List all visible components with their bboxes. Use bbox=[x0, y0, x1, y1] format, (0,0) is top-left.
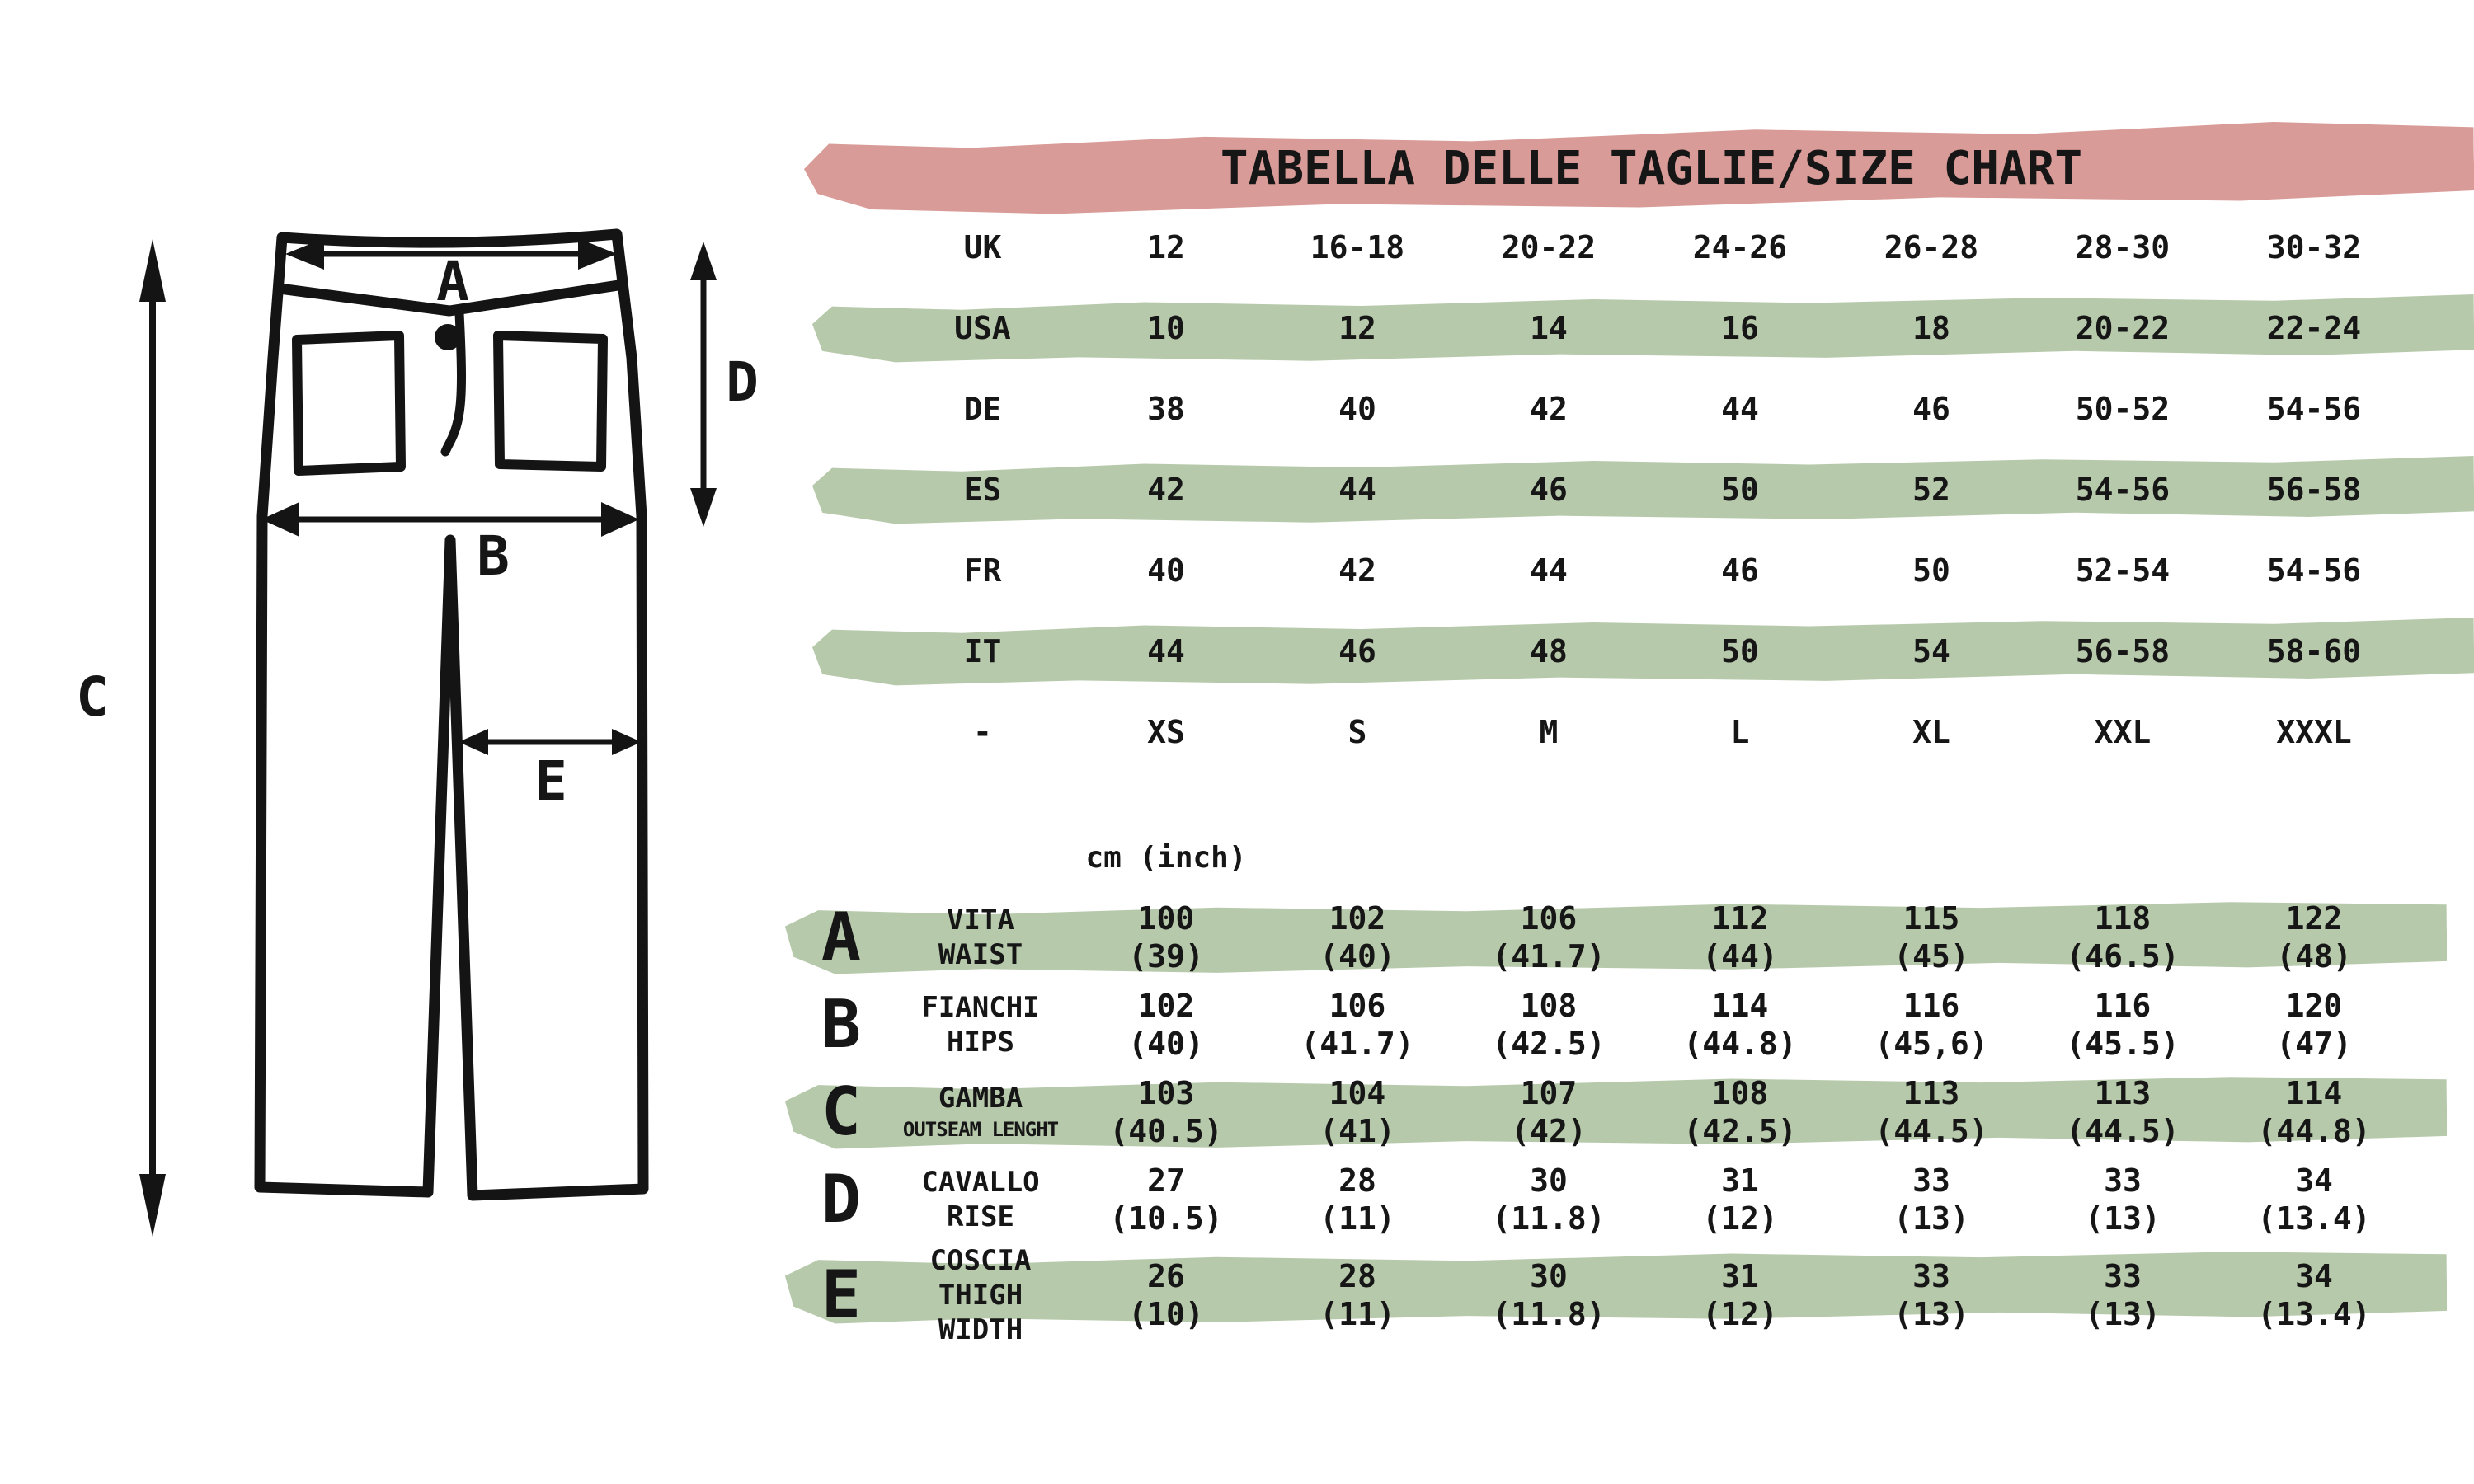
value-cm: 34 bbox=[2218, 1162, 2410, 1200]
value-inch: (44.8) bbox=[2218, 1112, 2410, 1150]
size-value: 26-28 bbox=[1836, 229, 2027, 265]
value-inch: (40.5) bbox=[1070, 1112, 1262, 1150]
value-inch: (40) bbox=[1262, 937, 1453, 975]
size-value: 52-54 bbox=[2027, 552, 2218, 589]
size-value: 40 bbox=[1070, 552, 1262, 589]
value-cm: 34 bbox=[2218, 1257, 2410, 1295]
measure-name-en: WAIST bbox=[891, 937, 1070, 972]
measure-value: 115 (45) bbox=[1836, 899, 2027, 975]
value-cm: 30 bbox=[1453, 1257, 1644, 1295]
measure-value: 34 (13.4) bbox=[2218, 1162, 2410, 1237]
measure-letter: B bbox=[792, 992, 891, 1058]
size-value: 54-56 bbox=[2218, 552, 2410, 589]
value-cm: 106 bbox=[1453, 899, 1644, 937]
size-value: 38 bbox=[1070, 391, 1262, 427]
value-cm: 118 bbox=[2027, 899, 2218, 937]
value-cm: 114 bbox=[1644, 987, 1836, 1025]
value-inch: (42) bbox=[1453, 1112, 1644, 1150]
size-value: 42 bbox=[1453, 391, 1644, 427]
measure-row: C GAMBA OUTSEAM LENGHT 103 (40.5) 104 (4… bbox=[792, 1068, 2410, 1156]
size-value: M bbox=[1453, 714, 1644, 750]
size-value: XL bbox=[1836, 714, 2027, 750]
size-value: 48 bbox=[1453, 633, 1644, 669]
measure-name: VITA WAIST bbox=[891, 903, 1070, 972]
measure-value: 33 (13) bbox=[1836, 1257, 2027, 1333]
value-inch: (11) bbox=[1262, 1295, 1453, 1333]
value-inch: (12) bbox=[1644, 1295, 1836, 1333]
measure-row: B FIANCHI HIPS 102 (40) 106 (41.7) 108 (… bbox=[792, 981, 2410, 1068]
size-value: 42 bbox=[1262, 552, 1453, 589]
measure-value: 106 (41.7) bbox=[1453, 899, 1644, 975]
dim-arrow-rise-d: D bbox=[690, 242, 759, 527]
value-cm: 33 bbox=[2027, 1162, 2218, 1200]
size-value: 10 bbox=[1070, 310, 1262, 346]
measure-name-it: FIANCHI bbox=[891, 990, 1070, 1025]
measure-value: 31 (12) bbox=[1644, 1162, 1836, 1237]
value-cm: 33 bbox=[2027, 1257, 2218, 1295]
measure-name-it: CAVALLO bbox=[891, 1165, 1070, 1200]
value-cm: 122 bbox=[2218, 899, 2410, 937]
measure-value: 116 (45,6) bbox=[1836, 987, 2027, 1063]
size-value: XS bbox=[1070, 714, 1262, 750]
value-inch: (11.8) bbox=[1453, 1295, 1644, 1333]
size-value: 50 bbox=[1644, 633, 1836, 669]
size-value: 44 bbox=[1262, 472, 1453, 508]
page-title: TABELLA DELLE TAGLIE/SIZE CHART bbox=[1196, 142, 2082, 195]
measure-letter: D bbox=[792, 1167, 891, 1233]
measurements-table: A VITA WAIST 100 (39) 102 (40) 106 (41.7… bbox=[792, 894, 2410, 1331]
value-cm: 115 bbox=[1836, 899, 2027, 937]
size-value: 16 bbox=[1644, 310, 1836, 346]
size-value: S bbox=[1262, 714, 1453, 750]
size-system-label: UK bbox=[895, 229, 1070, 265]
value-cm: 114 bbox=[2218, 1074, 2410, 1112]
measure-value: 102 (40) bbox=[1262, 899, 1453, 975]
value-inch: (48) bbox=[2218, 937, 2410, 975]
measure-name-it: VITA bbox=[891, 903, 1070, 937]
measure-value: 114 (44.8) bbox=[1644, 987, 1836, 1063]
measure-value: 104 (41) bbox=[1262, 1074, 1453, 1150]
value-inch: (41) bbox=[1262, 1112, 1453, 1150]
measure-name-it: COSCIA bbox=[891, 1243, 1070, 1278]
units-label: cm (inch) bbox=[1070, 831, 1262, 884]
size-value: 56-58 bbox=[2218, 472, 2410, 508]
size-value: 44 bbox=[1453, 552, 1644, 589]
measure-row: D CAVALLO RISE 27 (10.5) 28 (11) 30 (11.… bbox=[792, 1156, 2410, 1243]
value-cm: 112 bbox=[1644, 899, 1836, 937]
pants-outline bbox=[260, 234, 643, 1195]
value-cm: 31 bbox=[1644, 1257, 1836, 1295]
size-row: USA 10 12 14 16 18 20-22 22-24 bbox=[895, 288, 2410, 369]
value-inch: (42.5) bbox=[1453, 1025, 1644, 1063]
measure-value: 33 (13) bbox=[1836, 1162, 2027, 1237]
pants-diagram: A B C D E bbox=[0, 0, 825, 1484]
size-value: 58-60 bbox=[2218, 633, 2410, 669]
size-row: DE 38 40 42 44 46 50-52 54-56 bbox=[895, 369, 2410, 449]
size-value: L bbox=[1644, 714, 1836, 750]
measure-value: 108 (42.5) bbox=[1453, 987, 1644, 1063]
size-value: 54-56 bbox=[2218, 391, 2410, 427]
value-cm: 103 bbox=[1070, 1074, 1262, 1112]
size-value: 20-22 bbox=[1453, 229, 1644, 265]
size-value: 54 bbox=[1836, 633, 2027, 669]
measure-name: CAVALLO RISE bbox=[891, 1165, 1070, 1234]
value-cm: 108 bbox=[1644, 1074, 1836, 1112]
measure-value: 34 (13.4) bbox=[2218, 1257, 2410, 1333]
value-cm: 102 bbox=[1070, 987, 1262, 1025]
measure-letter: C bbox=[792, 1079, 891, 1145]
value-inch: (42.5) bbox=[1644, 1112, 1836, 1150]
measure-row: E COSCIA THIGH WIDTH 26 (10) 28 (11) 30 … bbox=[792, 1243, 2410, 1331]
value-cm: 30 bbox=[1453, 1162, 1644, 1200]
value-cm: 108 bbox=[1453, 987, 1644, 1025]
value-inch: (45,6) bbox=[1836, 1025, 2027, 1063]
size-row: ES 42 44 46 50 52 54-56 56-58 bbox=[895, 449, 2410, 530]
value-cm: 113 bbox=[1836, 1074, 2027, 1112]
size-value: 50-52 bbox=[2027, 391, 2218, 427]
value-inch: (40) bbox=[1070, 1025, 1262, 1063]
size-value: 44 bbox=[1644, 391, 1836, 427]
size-row: IT 44 46 48 50 54 56-58 58-60 bbox=[895, 611, 2410, 692]
size-value: 20-22 bbox=[2027, 310, 2218, 346]
measure-value: 116 (45.5) bbox=[2027, 987, 2218, 1063]
measure-name-en: THIGH WIDTH bbox=[891, 1278, 1070, 1347]
measure-value: 30 (11.8) bbox=[1453, 1162, 1644, 1237]
size-value: 24-26 bbox=[1644, 229, 1836, 265]
size-value: 18 bbox=[1836, 310, 2027, 346]
value-inch: (45) bbox=[1836, 937, 2027, 975]
measure-value: 26 (10) bbox=[1070, 1257, 1262, 1333]
value-inch: (47) bbox=[2218, 1025, 2410, 1063]
value-cm: 106 bbox=[1262, 987, 1453, 1025]
title-banner: TABELLA DELLE TAGLIE/SIZE CHART bbox=[804, 124, 2474, 213]
measure-row: A VITA WAIST 100 (39) 102 (40) 106 (41.7… bbox=[792, 894, 2410, 981]
value-cm: 33 bbox=[1836, 1162, 2027, 1200]
size-system-label: IT bbox=[895, 633, 1070, 669]
measure-value: 107 (42) bbox=[1453, 1074, 1644, 1150]
size-value: 52 bbox=[1836, 472, 2027, 508]
dim-label-d: D bbox=[726, 350, 759, 414]
size-value: 46 bbox=[1836, 391, 2027, 427]
size-value: 14 bbox=[1453, 310, 1644, 346]
size-value: 40 bbox=[1262, 391, 1453, 427]
value-inch: (41.7) bbox=[1262, 1025, 1453, 1063]
measure-value: 28 (11) bbox=[1262, 1257, 1453, 1333]
measure-value: 33 (13) bbox=[2027, 1257, 2218, 1333]
size-value: 30-32 bbox=[2218, 229, 2410, 265]
value-cm: 26 bbox=[1070, 1257, 1262, 1295]
measure-value: 112 (44) bbox=[1644, 899, 1836, 975]
size-value: 46 bbox=[1262, 633, 1453, 669]
value-cm: 113 bbox=[2027, 1074, 2218, 1112]
value-cm: 28 bbox=[1262, 1162, 1453, 1200]
value-inch: (41.7) bbox=[1453, 937, 1644, 975]
value-inch: (44) bbox=[1644, 937, 1836, 975]
measure-value: 27 (10.5) bbox=[1070, 1162, 1262, 1237]
measure-value: 100 (39) bbox=[1070, 899, 1262, 975]
value-cm: 27 bbox=[1070, 1162, 1262, 1200]
size-value: XXXL bbox=[2218, 714, 2410, 750]
value-inch: (44.5) bbox=[1836, 1112, 2027, 1150]
measure-value: 31 (12) bbox=[1644, 1257, 1836, 1333]
size-value: 12 bbox=[1262, 310, 1453, 346]
size-value: 28-30 bbox=[2027, 229, 2218, 265]
size-system-label: FR bbox=[895, 552, 1070, 589]
size-value: 16-18 bbox=[1262, 229, 1453, 265]
dim-label-a: A bbox=[436, 250, 469, 313]
value-inch: (13) bbox=[2027, 1295, 2218, 1333]
value-inch: (11) bbox=[1262, 1200, 1453, 1237]
dim-label-b: B bbox=[477, 524, 510, 588]
measure-value: 113 (44.5) bbox=[1836, 1074, 2027, 1150]
value-cm: 102 bbox=[1262, 899, 1453, 937]
value-cm: 120 bbox=[2218, 987, 2410, 1025]
measure-name-en: OUTSEAM LENGHT bbox=[891, 1115, 1070, 1144]
measure-value: 120 (47) bbox=[2218, 987, 2410, 1063]
measure-name: FIANCHI HIPS bbox=[891, 990, 1070, 1059]
size-value: 46 bbox=[1644, 552, 1836, 589]
size-value: 44 bbox=[1070, 633, 1262, 669]
size-value: 56-58 bbox=[2027, 633, 2218, 669]
size-value: 42 bbox=[1070, 472, 1262, 508]
value-inch: (44.5) bbox=[2027, 1112, 2218, 1150]
measure-value: 113 (44.5) bbox=[2027, 1074, 2218, 1150]
size-value: XXL bbox=[2027, 714, 2218, 750]
size-system-label: USA bbox=[895, 310, 1070, 346]
dim-label-c: C bbox=[76, 665, 109, 729]
measure-name-en: HIPS bbox=[891, 1025, 1070, 1059]
value-inch: (10) bbox=[1070, 1295, 1262, 1333]
measure-value: 103 (40.5) bbox=[1070, 1074, 1262, 1150]
size-system-label: ES bbox=[895, 472, 1070, 508]
value-inch: (12) bbox=[1644, 1200, 1836, 1237]
size-value: 50 bbox=[1644, 472, 1836, 508]
measure-name-en: RISE bbox=[891, 1200, 1070, 1234]
measure-value: 122 (48) bbox=[2218, 899, 2410, 975]
value-inch: (46.5) bbox=[2027, 937, 2218, 975]
value-cm: 31 bbox=[1644, 1162, 1836, 1200]
measure-value: 33 (13) bbox=[2027, 1162, 2218, 1237]
value-inch: (39) bbox=[1070, 937, 1262, 975]
value-inch: (13) bbox=[2027, 1200, 2218, 1237]
measure-value: 114 (44.8) bbox=[2218, 1074, 2410, 1150]
size-system-label: - bbox=[895, 714, 1070, 750]
value-cm: 116 bbox=[1836, 987, 2027, 1025]
size-system-label: DE bbox=[895, 391, 1070, 427]
measure-name: COSCIA THIGH WIDTH bbox=[891, 1243, 1070, 1347]
measure-value: 30 (11.8) bbox=[1453, 1257, 1644, 1333]
measure-value: 118 (46.5) bbox=[2027, 899, 2218, 975]
measure-letter: E bbox=[792, 1262, 891, 1328]
measure-value: 102 (40) bbox=[1070, 987, 1262, 1063]
size-value: 50 bbox=[1836, 552, 2027, 589]
size-row: UK 12 16-18 20-22 24-26 26-28 28-30 30-3… bbox=[895, 207, 2410, 288]
measure-name: GAMBA OUTSEAM LENGHT bbox=[891, 1081, 1070, 1144]
measure-name-it: GAMBA bbox=[891, 1081, 1070, 1115]
size-value: 22-24 bbox=[2218, 310, 2410, 346]
value-cm: 107 bbox=[1453, 1074, 1644, 1112]
measure-letter: A bbox=[792, 904, 891, 970]
value-inch: (45.5) bbox=[2027, 1025, 2218, 1063]
value-cm: 104 bbox=[1262, 1074, 1453, 1112]
size-row: - XS S M L XL XXL XXXL bbox=[895, 692, 2410, 773]
size-conversion-table: UK 12 16-18 20-22 24-26 26-28 28-30 30-3… bbox=[895, 207, 2410, 773]
value-cm: 116 bbox=[2027, 987, 2218, 1025]
dim-label-e: E bbox=[534, 749, 567, 813]
value-inch: (13.4) bbox=[2218, 1200, 2410, 1237]
value-inch: (10.5) bbox=[1070, 1200, 1262, 1237]
size-value: 46 bbox=[1453, 472, 1644, 508]
size-value: 54-56 bbox=[2027, 472, 2218, 508]
value-cm: 28 bbox=[1262, 1257, 1453, 1295]
measure-value: 108 (42.5) bbox=[1644, 1074, 1836, 1150]
value-inch: (13) bbox=[1836, 1200, 2027, 1237]
dim-arrow-outseam-c: C bbox=[76, 239, 166, 1237]
value-cm: 100 bbox=[1070, 899, 1262, 937]
measure-value: 106 (41.7) bbox=[1262, 987, 1453, 1063]
value-inch: (44.8) bbox=[1644, 1025, 1836, 1063]
value-cm: 33 bbox=[1836, 1257, 2027, 1295]
size-value: 12 bbox=[1070, 229, 1262, 265]
measure-value: 28 (11) bbox=[1262, 1162, 1453, 1237]
value-inch: (13) bbox=[1836, 1295, 2027, 1333]
value-inch: (13.4) bbox=[2218, 1295, 2410, 1333]
size-row: FR 40 42 44 46 50 52-54 54-56 bbox=[895, 530, 2410, 611]
value-inch: (11.8) bbox=[1453, 1200, 1644, 1237]
